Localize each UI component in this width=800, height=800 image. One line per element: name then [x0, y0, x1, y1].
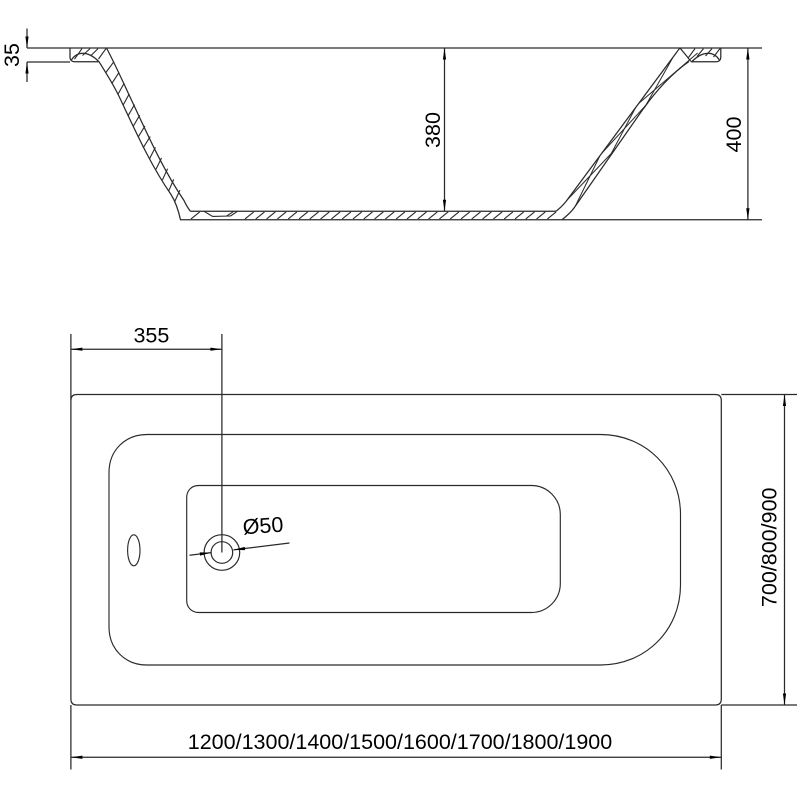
svg-text:1200/1300/1400/1500/1600/1700/: 1200/1300/1400/1500/1600/1700/1800/1900	[188, 730, 612, 754]
svg-text:35: 35	[0, 43, 24, 67]
svg-text:700/800/900: 700/800/900	[758, 487, 782, 607]
svg-text:355: 355	[133, 323, 169, 347]
svg-text:400: 400	[722, 117, 746, 153]
svg-text:Ø50: Ø50	[242, 513, 284, 540]
svg-text:380: 380	[421, 112, 445, 148]
